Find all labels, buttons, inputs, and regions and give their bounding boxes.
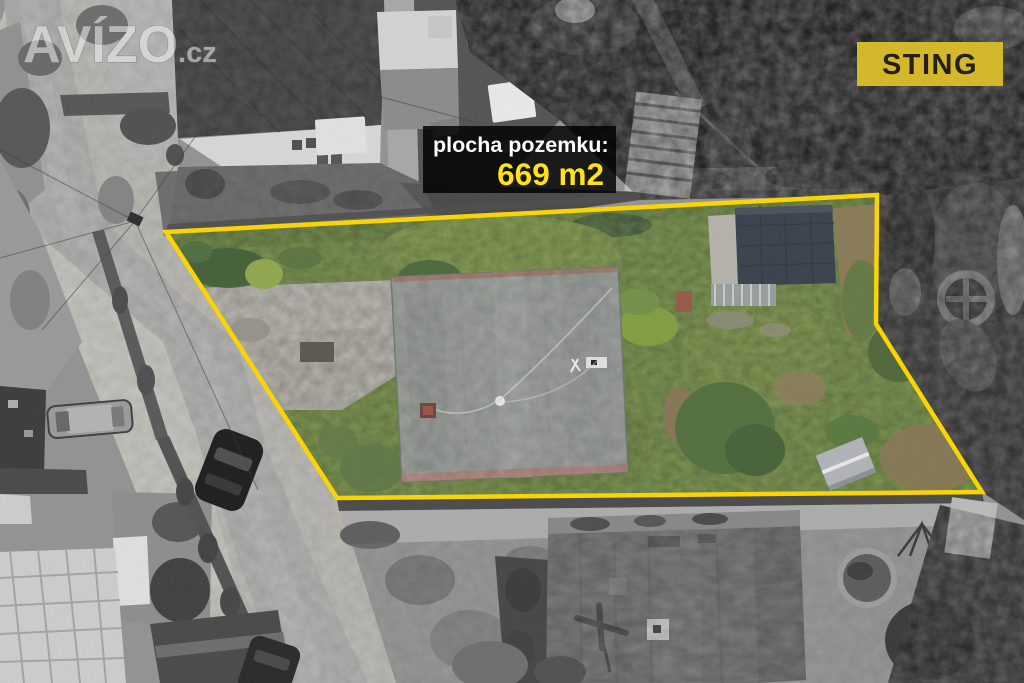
svg-text:669 m2: 669 m2	[497, 156, 604, 192]
svg-text:STING: STING	[882, 49, 978, 81]
svg-text:plocha pozemku:: plocha pozemku:	[433, 133, 609, 157]
